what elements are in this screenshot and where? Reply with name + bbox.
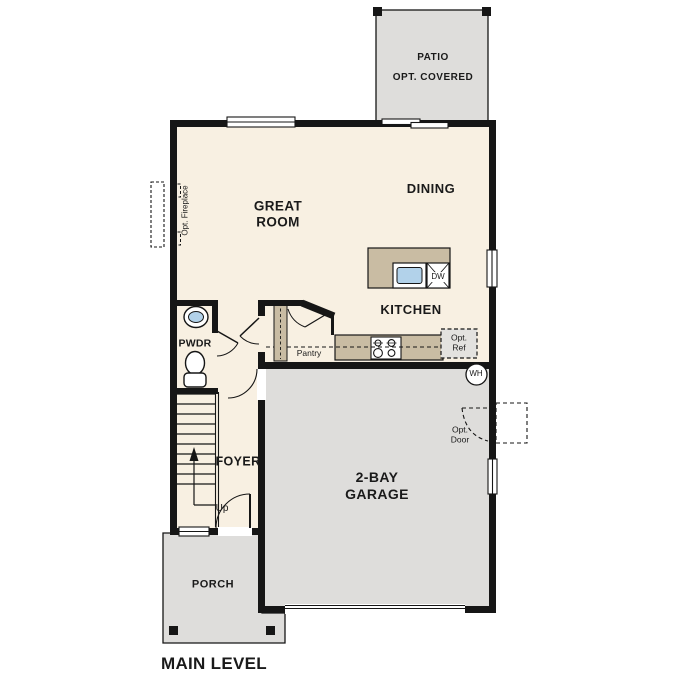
kitchen-label: KITCHEN <box>380 302 441 318</box>
dining-label: DINING <box>407 181 456 197</box>
toilet <box>184 352 206 388</box>
foyer-label: FOYER <box>215 454 260 469</box>
powder-room-label: PWDR <box>179 338 212 351</box>
garage-label: 2-BAY GARAGE <box>336 469 418 503</box>
kitchen-island <box>368 248 450 288</box>
wall-garage-top <box>258 362 496 369</box>
wall-powder-top <box>170 300 218 306</box>
porch-post-left <box>169 626 178 635</box>
patio-note-label: OPT. COVERED <box>393 72 473 84</box>
wall-pantry-top <box>265 300 303 306</box>
floor-plan-page: PATIO OPT. COVERED GREAT ROOM DINING KIT… <box>0 0 687 687</box>
cooktop <box>371 337 401 359</box>
opt-refrigerator-label: Opt. Ref <box>446 333 472 354</box>
garage-entry-opening <box>257 369 266 400</box>
stairs-up-label: Up <box>216 503 229 515</box>
wall-pantry-left-lower <box>258 352 265 362</box>
patio-area <box>373 7 491 122</box>
great-room-label: GREAT ROOM <box>242 199 314 232</box>
water-heater-label: WH <box>469 369 482 379</box>
opt-door-label: Opt. Door <box>445 425 475 446</box>
wall-left <box>170 120 177 535</box>
pantry-label: Pantry <box>297 348 322 358</box>
wall-powder-bottom <box>170 388 218 394</box>
patio-post-left <box>373 7 382 16</box>
porch-post-right <box>266 626 275 635</box>
opt-fireplace-label: Opt. Fireplace <box>181 176 194 246</box>
floor-plan-drawing <box>0 0 687 687</box>
pantry-shelves <box>274 301 287 361</box>
wall-pantry-left-upper <box>258 300 265 316</box>
patio-label: PATIO <box>417 52 449 64</box>
dishwasher-label: DW <box>430 272 445 282</box>
front-door-opening <box>218 527 252 536</box>
patio-slider-panel-b <box>411 123 448 129</box>
plan-title: MAIN LEVEL <box>161 654 267 674</box>
wall-powder-right <box>212 300 218 333</box>
patio-post-right <box>482 7 491 16</box>
porch-label: PORCH <box>192 578 234 591</box>
